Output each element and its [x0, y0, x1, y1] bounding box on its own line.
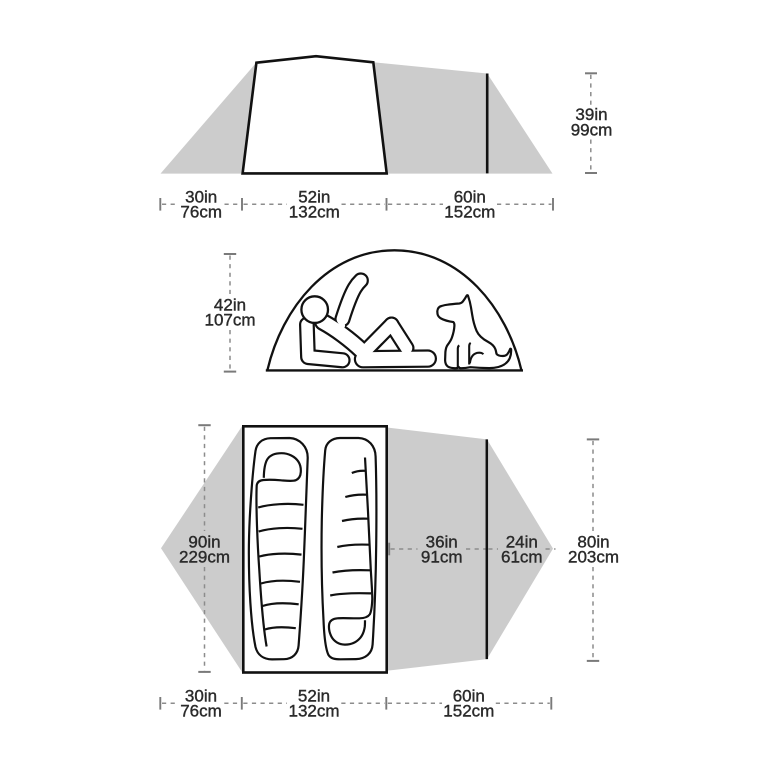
svg-text:99cm: 99cm: [571, 120, 613, 139]
svg-text:91cm: 91cm: [421, 548, 463, 567]
svg-text:76cm: 76cm: [180, 203, 222, 222]
svg-text:76cm: 76cm: [180, 702, 222, 721]
svg-text:203cm: 203cm: [568, 548, 619, 567]
svg-text:132cm: 132cm: [288, 702, 339, 721]
svg-text:152cm: 152cm: [443, 702, 494, 721]
svg-text:132cm: 132cm: [289, 203, 340, 222]
svg-text:61cm: 61cm: [501, 548, 543, 567]
svg-text:152cm: 152cm: [444, 203, 495, 222]
svg-text:229cm: 229cm: [179, 548, 230, 567]
svg-text:107cm: 107cm: [204, 311, 255, 330]
